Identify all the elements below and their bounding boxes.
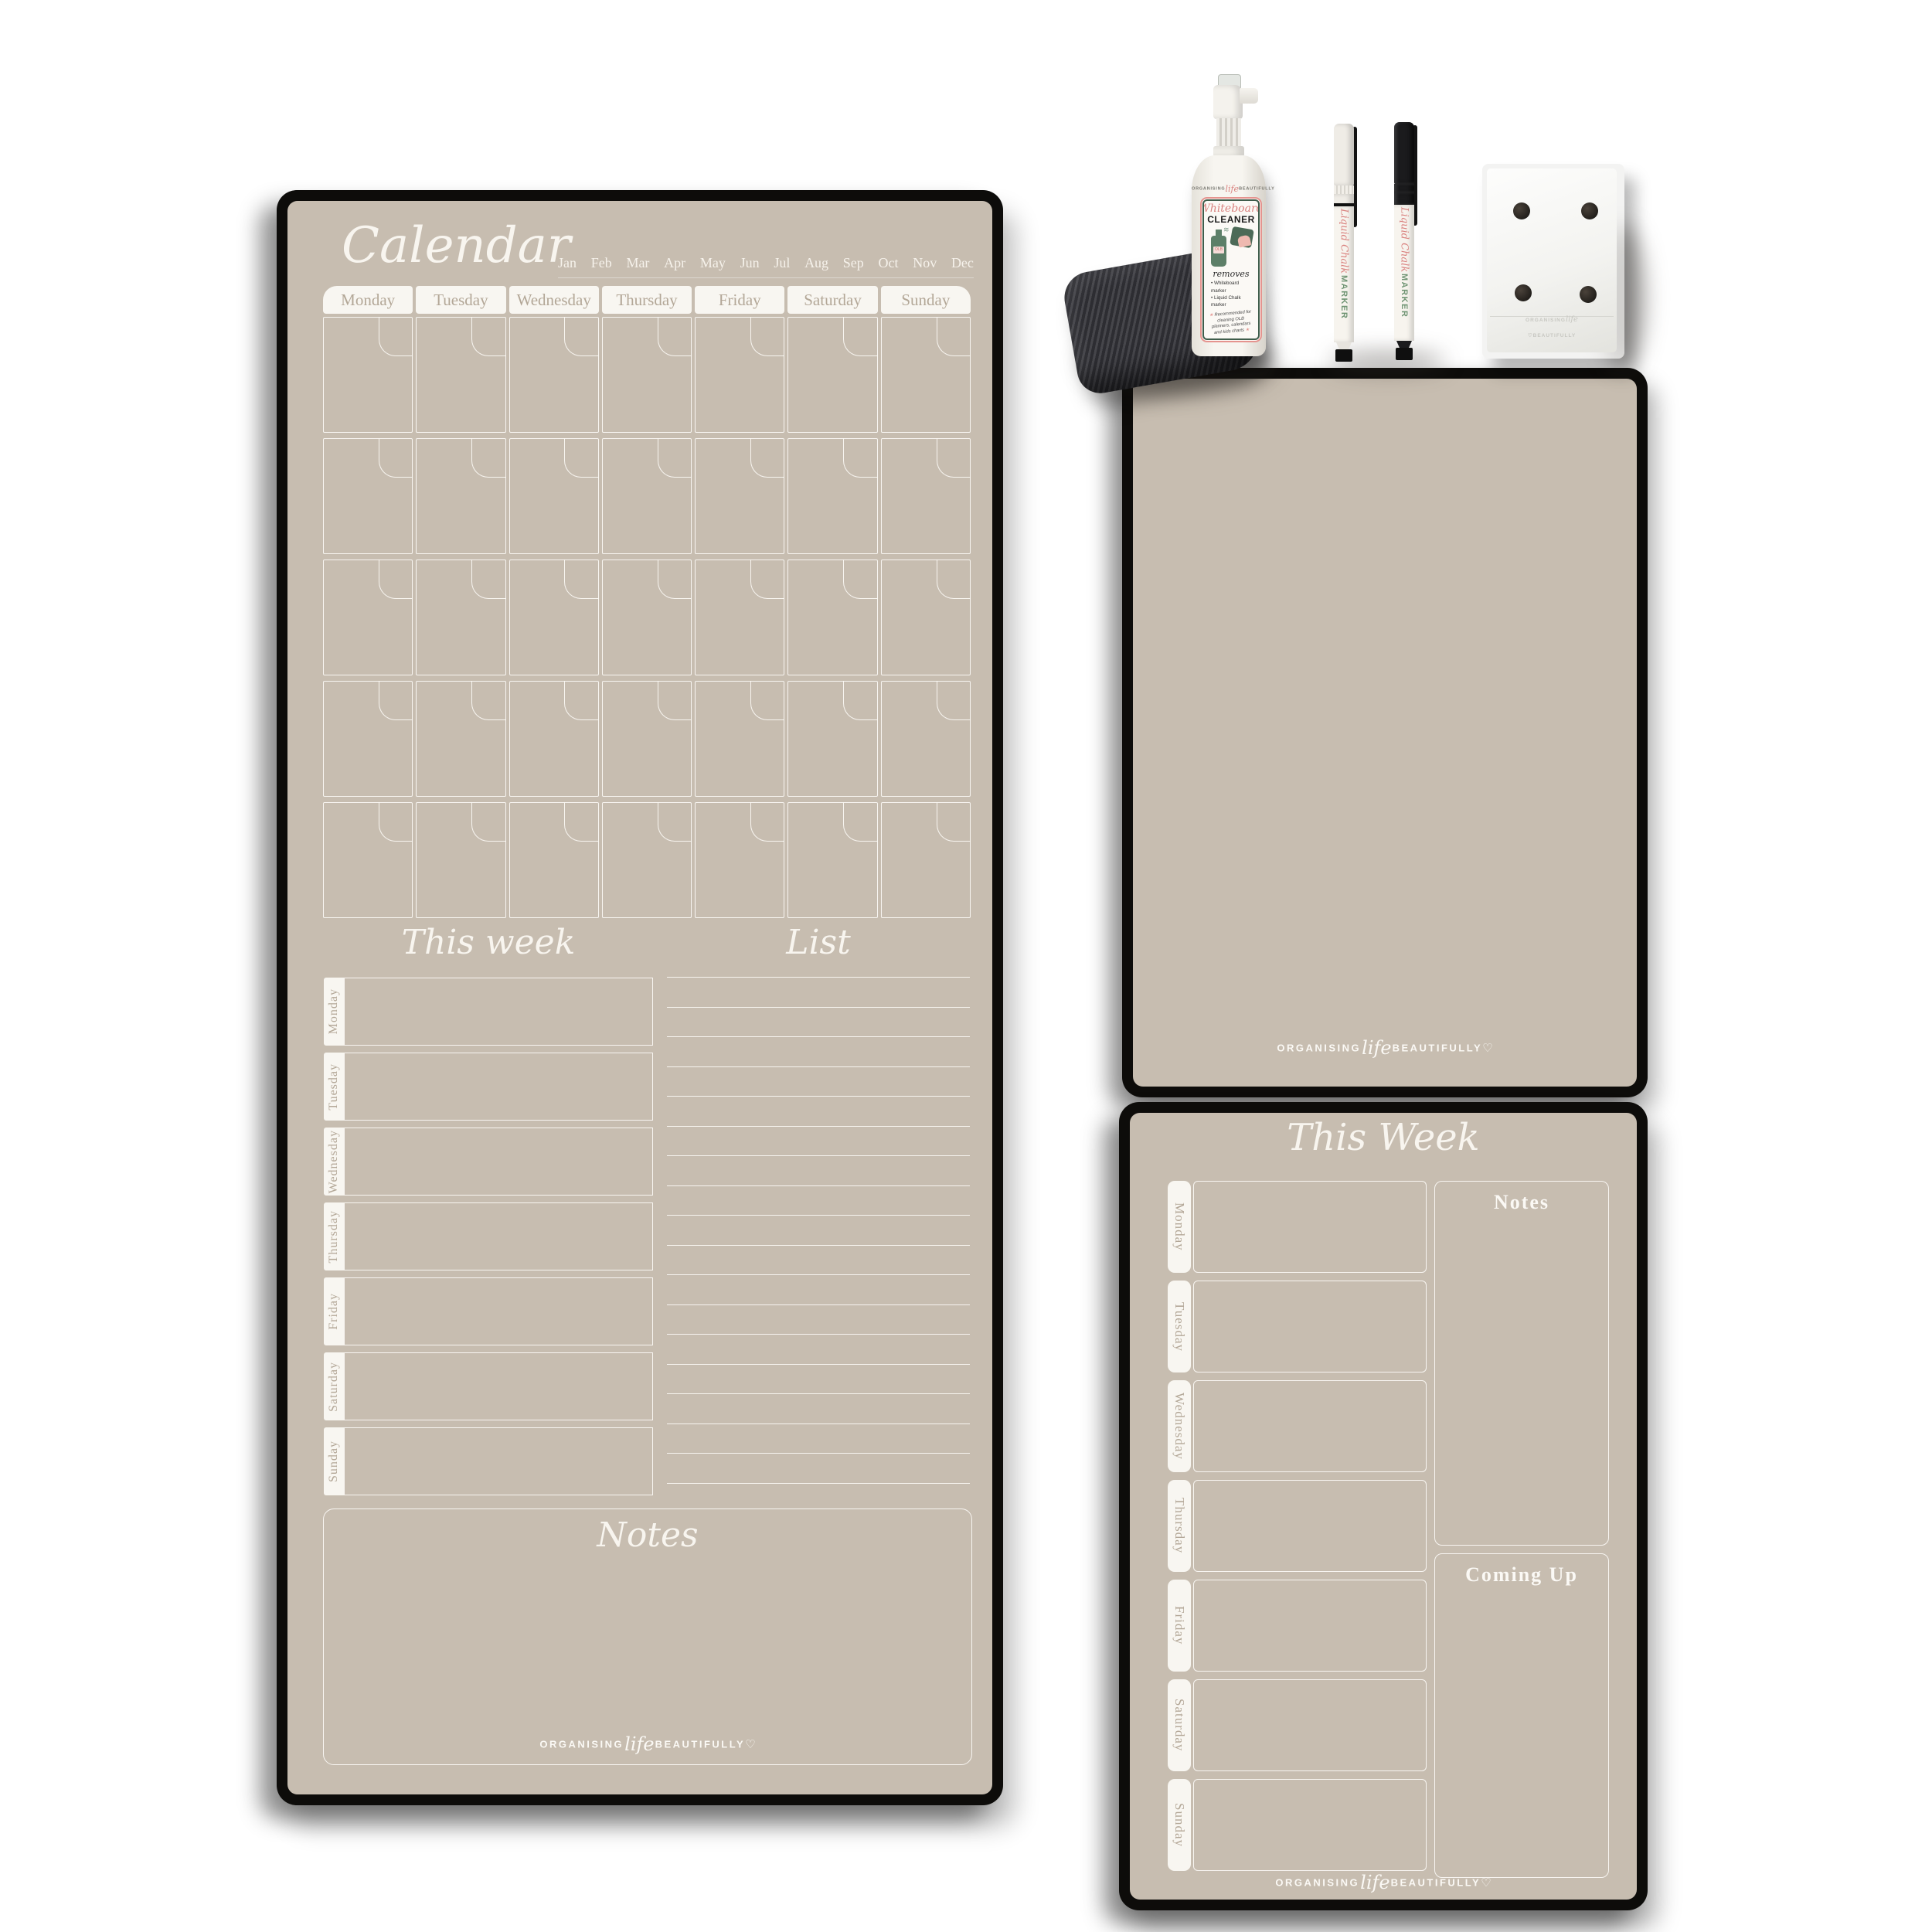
date-corner-notch <box>379 438 413 478</box>
marker-cap <box>1394 122 1414 184</box>
star-icon: ★ <box>1209 313 1214 318</box>
liquid-chalk-marker-black: Liquid Chalk MARKER <box>1393 122 1417 357</box>
date-corner-notch <box>843 560 877 599</box>
day-tab: Saturday <box>324 1352 344 1420</box>
day-tab: Wednesday <box>324 1128 344 1196</box>
brand-caps: ORGANISING <box>1277 1043 1361 1054</box>
spray-neck <box>1216 118 1241 148</box>
list-line <box>667 1215 970 1245</box>
heart-icon: ♡ <box>1482 1041 1492 1055</box>
month-underline <box>558 277 974 278</box>
list-line <box>667 1007 970 1037</box>
date-corner-notch <box>750 681 784 720</box>
marker-label-script: Liquid Chalk <box>1400 207 1410 272</box>
weekly-day-row: Sunday <box>1168 1779 1427 1871</box>
list-line <box>667 1126 970 1156</box>
brand-logo: ORGANISINGlifeBEAUTIFULLY♡ <box>1130 1872 1637 1893</box>
day-writing-box <box>1193 1779 1427 1871</box>
this-week-row: Sunday <box>324 1427 653 1495</box>
calendar-day-cell <box>602 681 692 797</box>
marker-label-caps: MARKER <box>1339 275 1349 319</box>
this-week-rows: MondayTuesdayWednesdayThursdayFridaySatu… <box>324 978 653 1495</box>
weekly-day-row: Tuesday <box>1168 1281 1427 1372</box>
eraser-brand-logo: ORGANISINGlife ♡BEAUTIFULLY <box>1487 311 1617 342</box>
date-corner-notch <box>564 317 598 356</box>
marker-label-caps: MARKER <box>1400 274 1409 318</box>
calendar-day-cell <box>881 560 971 675</box>
mini-bottle-tag: OLB <box>1213 247 1224 253</box>
date-corner-notch <box>564 681 598 720</box>
calendar-day-cell <box>787 681 877 797</box>
list-line <box>667 1364 970 1394</box>
date-corner-notch <box>750 438 784 478</box>
weekly-notes-panel: Notes <box>1434 1181 1609 1546</box>
calendar-day-cell <box>602 438 692 554</box>
day-tab: Tuesday <box>324 1053 344 1121</box>
day-writing-box <box>344 1202 653 1270</box>
brand-caps: ORGANISING <box>1192 186 1225 191</box>
date-corner-notch <box>471 802 505 842</box>
date-corner-notch <box>658 560 692 599</box>
brand-script: life <box>1566 315 1578 324</box>
cleaner-title-caps: CLEANER <box>1207 214 1255 225</box>
date-corner-notch <box>937 317 971 356</box>
day-writing-box <box>1193 1480 1427 1572</box>
day-tab-label: Thursday <box>327 1210 341 1263</box>
spray-head <box>1213 85 1243 119</box>
list-line <box>667 1185 970 1216</box>
date-corner-notch <box>471 681 505 720</box>
magnetic-eraser: ORGANISINGlife ♡BEAUTIFULLY <box>1482 164 1624 359</box>
day-tab: Thursday <box>324 1202 344 1270</box>
day-tab: Thursday <box>1168 1480 1191 1572</box>
list-line <box>667 977 970 1007</box>
list-line <box>667 1245 970 1275</box>
day-tab-label: Tuesday <box>327 1063 341 1111</box>
date-corner-notch <box>379 560 413 599</box>
date-corner-notch <box>564 802 598 842</box>
this-week-title: This week <box>324 923 653 962</box>
date-corner-notch <box>471 560 505 599</box>
day-tab: Sunday <box>1168 1779 1191 1871</box>
calendar-day-cell <box>602 802 692 918</box>
date-corner-notch <box>937 802 971 842</box>
coming-up-label: Coming Up <box>1435 1563 1608 1587</box>
brand-logo: ORGANISINGlifeBEAUTIFULLY♡ <box>1133 1037 1637 1059</box>
date-corner-notch <box>843 438 877 478</box>
list-line <box>667 1066 970 1097</box>
calendar-day-cell <box>416 802 505 918</box>
month-label: May <box>700 255 726 271</box>
calendar-day-cell <box>881 681 971 797</box>
marker-label: Liquid Chalk MARKER <box>1334 206 1354 342</box>
day-header: Wednesday <box>509 286 599 314</box>
date-corner-notch <box>471 317 505 356</box>
date-corner-notch <box>843 802 877 842</box>
date-corner-notch <box>379 681 413 720</box>
marker-collar <box>1334 185 1354 194</box>
calendar-day-cell <box>416 317 505 433</box>
removes-script: removes <box>1213 270 1249 278</box>
this-week-row: Thursday <box>324 1202 653 1270</box>
calendar-day-cell <box>323 317 413 433</box>
weekly-rows: MondayTuesdayWednesdayThursdayFridaySatu… <box>1168 1181 1427 1871</box>
cleaner-label: Whiteboard CLEANER ≋ OLB removes • White… <box>1200 197 1262 342</box>
date-corner-notch <box>379 802 413 842</box>
month-label: Nov <box>913 255 937 271</box>
cleaner-title-script: Whiteboard <box>1202 203 1260 214</box>
day-tab: Monday <box>1168 1181 1191 1273</box>
this-week-row: Friday <box>324 1277 653 1345</box>
magnet-dot <box>1581 202 1598 219</box>
calendar-board-surface: Calendar JanFebMarAprMayJunJulAugSepOctN… <box>287 201 992 1794</box>
calendar-day-cell <box>323 681 413 797</box>
marker-nib-cover <box>1396 348 1413 360</box>
marker-label: Liquid Chalk MARKER <box>1394 205 1414 341</box>
weekly-day-row: Saturday <box>1168 1679 1427 1771</box>
calendar-day-cell <box>787 560 877 675</box>
list-line <box>667 1453 970 1483</box>
brand-script: life <box>624 1733 654 1755</box>
list-line <box>667 1096 970 1126</box>
calendar-day-cell <box>787 317 877 433</box>
heart-icon: ♡ <box>1528 333 1533 338</box>
day-tab-label: Friday <box>327 1293 341 1330</box>
month-label: Jul <box>774 255 790 271</box>
calendar-day-cell <box>695 802 784 918</box>
day-tab: Tuesday <box>1168 1281 1191 1372</box>
spray-nozzle <box>1240 88 1258 104</box>
day-tab-label: Tuesday <box>1172 1302 1187 1352</box>
date-corner-notch <box>750 560 784 599</box>
weekly-title: This Week <box>1130 1116 1637 1159</box>
weekly-board-surface: This Week MondayTuesdayWednesdayThursday… <box>1130 1113 1637 1900</box>
day-tab-label: Thursday <box>1172 1498 1187 1553</box>
month-label: Feb <box>591 255 612 271</box>
blank-board-surface: ORGANISINGlifeBEAUTIFULLY♡ <box>1133 379 1637 1087</box>
list-title: List <box>667 923 970 962</box>
date-corner-notch <box>658 802 692 842</box>
date-corner-notch <box>658 317 692 356</box>
cleaner-bullet: • Liquid Chalk marker <box>1211 294 1251 308</box>
list-line <box>667 1334 970 1364</box>
calendar-day-cell <box>323 802 413 918</box>
month-label: Aug <box>804 255 828 271</box>
weekly-day-row: Wednesday <box>1168 1380 1427 1472</box>
brand-caps: ORGANISING <box>1526 318 1566 323</box>
this-week-row: Monday <box>324 978 653 1046</box>
magnet-dot <box>1580 286 1597 303</box>
blank-board: ORGANISINGlifeBEAUTIFULLY♡ <box>1122 368 1648 1097</box>
day-tab-label: Sunday <box>327 1440 341 1482</box>
weekly-day-row: Thursday <box>1168 1480 1427 1572</box>
calendar-day-cell <box>416 681 505 797</box>
month-label: Apr <box>664 255 685 271</box>
calendar-day-cell <box>602 317 692 433</box>
day-writing-box <box>1193 1281 1427 1372</box>
day-tab-label: Monday <box>327 988 341 1034</box>
day-tab: Saturday <box>1168 1679 1191 1771</box>
coming-up-panel: Coming Up <box>1434 1553 1609 1878</box>
weekly-day-row: Monday <box>1168 1181 1427 1273</box>
date-corner-notch <box>937 438 971 478</box>
list-lines <box>667 977 970 1512</box>
date-corner-notch <box>750 802 784 842</box>
calendar-day-cell <box>509 438 599 554</box>
calendar-title: Calendar <box>342 221 570 270</box>
cleaner-bullets: • Whiteboard marker • Liquid Chalk marke… <box>1211 280 1251 308</box>
month-label: Dec <box>951 255 974 271</box>
day-tab-label: Wednesday <box>327 1130 341 1193</box>
month-label: Mar <box>626 255 649 271</box>
calendar-day-cell <box>881 802 971 918</box>
calendar-day-cell <box>881 438 971 554</box>
date-corner-notch <box>658 681 692 720</box>
day-header: Saturday <box>787 286 877 314</box>
day-tab: Monday <box>324 978 344 1046</box>
date-corner-notch <box>471 438 505 478</box>
liquid-chalk-marker-white: Liquid Chalk MARKER <box>1332 124 1357 357</box>
notes-box: Notes ORGANISINGlifeBEAUTIFULLY♡ <box>323 1509 972 1765</box>
list-line <box>667 1155 970 1185</box>
marker-barrel <box>1394 192 1414 205</box>
day-writing-box <box>1193 1679 1427 1771</box>
marker-cap <box>1334 124 1354 185</box>
bottle-brand-line: ORGANISINGlifeBEAUTIFULLY <box>1192 182 1266 196</box>
date-corner-notch <box>937 560 971 599</box>
calendar-day-cell <box>416 560 505 675</box>
day-tab-label: Monday <box>1172 1202 1187 1251</box>
month-label: Jun <box>740 255 760 271</box>
marker-label-script: Liquid Chalk <box>1339 209 1349 274</box>
day-tab-label: Sunday <box>1172 1803 1187 1847</box>
calendar-grid <box>323 317 971 918</box>
this-week-row: Saturday <box>324 1352 653 1420</box>
notes-title: Notes <box>324 1515 971 1555</box>
calendar-day-cell <box>695 560 784 675</box>
product-photo-planner-set: Calendar JanFebMarAprMayJunJulAugSepOctN… <box>0 0 1932 1932</box>
calendar-day-cell <box>509 681 599 797</box>
list-line <box>667 1036 970 1066</box>
day-tab-label: Saturday <box>327 1362 341 1412</box>
list-line <box>667 1274 970 1304</box>
calendar-day-cell <box>881 317 971 433</box>
cleaner-illustration: ≋ OLB <box>1204 225 1258 270</box>
brand-script: life <box>1225 184 1239 194</box>
day-header: Tuesday <box>416 286 505 314</box>
list-line <box>667 1393 970 1423</box>
calendar-day-cell <box>509 802 599 918</box>
brand-caps: ORGANISING <box>1275 1877 1359 1889</box>
weekly-board: This Week MondayTuesdayWednesdayThursday… <box>1119 1102 1648 1910</box>
day-tab-label: Saturday <box>1172 1699 1187 1751</box>
date-corner-notch <box>843 681 877 720</box>
list-line <box>667 1304 970 1335</box>
day-header: Sunday <box>881 286 971 314</box>
date-corner-notch <box>937 681 971 720</box>
day-writing-box <box>344 1277 653 1345</box>
bottle-body: ORGANISINGlifeBEAUTIFULLY Whiteboard CLE… <box>1192 155 1266 356</box>
brand-script: life <box>1360 1872 1389 1893</box>
eraser-face: ORGANISINGlife ♡BEAUTIFULLY <box>1487 168 1617 352</box>
day-writing-box <box>344 1053 653 1121</box>
calendar-day-cell <box>695 317 784 433</box>
day-writing-box <box>1193 1580 1427 1672</box>
day-tab: Friday <box>324 1277 344 1345</box>
month-label: Sep <box>843 255 864 271</box>
calendar-day-cell <box>509 317 599 433</box>
list-line <box>667 1423 970 1454</box>
day-header-row: MondayTuesdayWednesdayThursdayFridaySatu… <box>323 286 971 314</box>
brand-caps: BEAUTIFULLY <box>1533 333 1577 338</box>
heart-icon: ♡ <box>745 1737 755 1751</box>
weekly-day-row: Friday <box>1168 1580 1427 1672</box>
day-writing-box <box>344 1352 653 1420</box>
date-corner-notch <box>564 438 598 478</box>
calendar-day-cell <box>323 560 413 675</box>
cleaner-spray-bottle: ORGANISINGlifeBEAUTIFULLY Whiteboard CLE… <box>1190 74 1269 357</box>
month-label: Oct <box>879 255 899 271</box>
date-corner-notch <box>379 317 413 356</box>
cleaner-footnote: ★ Recommended for cleaning OLB planners,… <box>1207 309 1255 336</box>
weekly-notes-label: Notes <box>1435 1191 1608 1214</box>
day-writing-box <box>344 978 653 1046</box>
day-writing-box <box>1193 1181 1427 1273</box>
calendar-board: Calendar JanFebMarAprMayJunJulAugSepOctN… <box>277 190 1003 1805</box>
magnet-dot <box>1513 202 1530 219</box>
brand-caps: BEAUTIFULLY <box>1239 186 1275 191</box>
calendar-day-cell <box>416 438 505 554</box>
day-header: Monday <box>323 286 413 314</box>
heart-icon: ♡ <box>1481 1876 1491 1889</box>
date-corner-notch <box>658 438 692 478</box>
this-week-row: Tuesday <box>324 1053 653 1121</box>
day-writing-box <box>344 1427 653 1495</box>
month-label: Jan <box>558 255 577 271</box>
calendar-day-cell <box>695 438 784 554</box>
day-writing-box <box>1193 1380 1427 1472</box>
date-corner-notch <box>750 317 784 356</box>
calendar-day-cell <box>602 560 692 675</box>
day-tab: Friday <box>1168 1580 1191 1672</box>
cleaner-label-inner: Whiteboard CLEANER ≋ OLB removes • White… <box>1202 199 1260 340</box>
month-row: JanFebMarAprMayJunJulAugSepOctNovDec <box>558 255 974 271</box>
day-header: Thursday <box>602 286 692 314</box>
calendar-day-cell <box>787 438 877 554</box>
day-header: Friday <box>695 286 784 314</box>
star-icon: ★ <box>1245 327 1250 332</box>
day-tab-label: Wednesday <box>1172 1393 1187 1460</box>
this-week-row: Wednesday <box>324 1128 653 1196</box>
brand-caps: BEAUTIFULLY <box>1391 1877 1481 1889</box>
day-tab: Sunday <box>324 1427 344 1495</box>
day-writing-box <box>344 1128 653 1196</box>
brand-caps: BEAUTIFULLY <box>1393 1043 1483 1054</box>
calendar-day-cell <box>323 438 413 554</box>
calendar-day-cell <box>509 560 599 675</box>
brand-logo: ORGANISINGlifeBEAUTIFULLY♡ <box>324 1733 971 1755</box>
marker-collar <box>1394 184 1414 192</box>
magnet-dot <box>1515 284 1532 301</box>
date-corner-notch <box>564 560 598 599</box>
brand-caps: BEAUTIFULLY <box>655 1739 746 1750</box>
brand-script: life <box>1362 1037 1391 1059</box>
cleaner-bullet: • Whiteboard marker <box>1211 280 1251 294</box>
date-corner-notch <box>843 317 877 356</box>
marker-nib-cover <box>1335 349 1352 362</box>
day-tab: Wednesday <box>1168 1380 1191 1472</box>
day-tab-label: Friday <box>1172 1606 1187 1645</box>
calendar-day-cell <box>695 681 784 797</box>
brand-caps: ORGANISING <box>539 1739 624 1750</box>
calendar-day-cell <box>787 802 877 918</box>
